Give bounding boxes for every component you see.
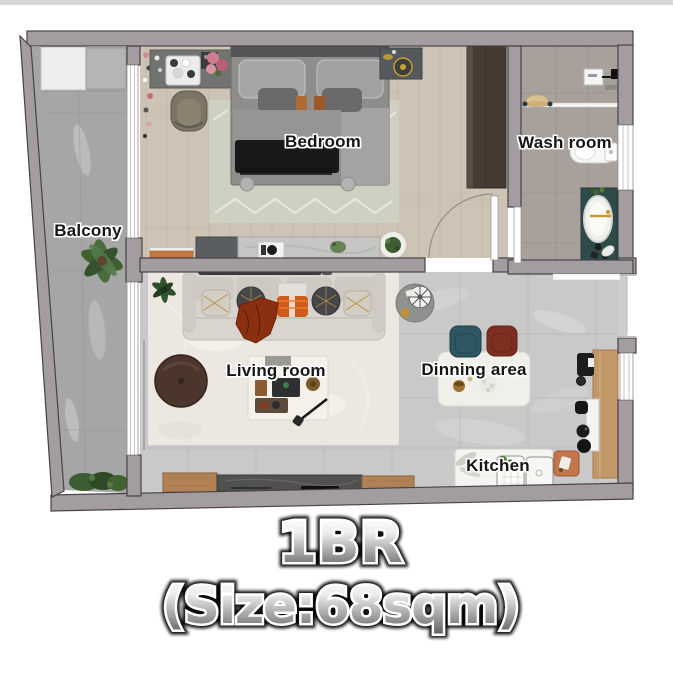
vanity-desk — [150, 50, 233, 88]
bedroom-door-leaf — [491, 196, 498, 260]
balcony-window-bedroom — [127, 65, 138, 238]
bedroom-console — [196, 237, 380, 261]
living-furniture — [148, 268, 434, 445]
dining-chair-red — [487, 326, 517, 356]
side-table — [396, 284, 434, 322]
right-wall-mid — [618, 190, 633, 260]
floor-plan-canvas — [0, 0, 673, 515]
sofa — [183, 268, 385, 343]
floorplan-page: Balcony Bedroom Wash room Living room Di… — [0, 0, 673, 683]
dining-chair-teal — [450, 326, 481, 357]
balcony-label: Balcony — [54, 221, 122, 241]
kitchen-label: Kitchen — [466, 456, 530, 476]
vanity-chair — [171, 91, 207, 131]
bed — [231, 44, 389, 191]
right-wall-lower — [618, 400, 633, 492]
bathtub — [581, 188, 617, 261]
balcony-white-unit — [41, 47, 86, 90]
plan-title: 1BR 1BR 1BR (Size:68sqm) (Size:68sqm) (S… — [8, 514, 673, 638]
washroom-threshold — [553, 274, 620, 280]
living-room-label: Living room — [226, 361, 325, 381]
washroom-bottom-wall — [508, 260, 633, 274]
wardrobe — [467, 46, 506, 188]
washroom-label: Wash room — [518, 133, 612, 153]
washroom-left-wall — [508, 46, 521, 207]
kitchen-window — [620, 353, 633, 400]
balcony-gray-unit — [86, 48, 126, 89]
right-wall-block — [618, 338, 636, 353]
right-wall-upper — [618, 45, 633, 125]
cutting-board — [554, 451, 579, 476]
title-line-1: 1BR 1BR 1BR — [8, 514, 673, 574]
top-wall — [27, 31, 633, 46]
pouf — [155, 355, 207, 407]
bedroom-plant — [380, 232, 406, 258]
dining-area-label: Dinning area — [421, 360, 526, 380]
balcony-window-living — [127, 282, 138, 455]
washroom-window — [618, 125, 633, 190]
nightstand — [380, 48, 422, 79]
washroom-door-leaf — [514, 207, 521, 263]
bedroom-bench — [150, 248, 193, 258]
dining-side-opening — [618, 274, 636, 338]
balcony-wall-top — [127, 46, 140, 65]
sideboard-left — [163, 473, 217, 492]
title-line-2: (Size:68sqm) (Size:68sqm) (Size:68sqm) — [8, 574, 673, 638]
divider-wall — [140, 258, 425, 272]
bedroom-label: Bedroom — [285, 132, 361, 152]
balcony-wall-bottom — [127, 455, 141, 496]
